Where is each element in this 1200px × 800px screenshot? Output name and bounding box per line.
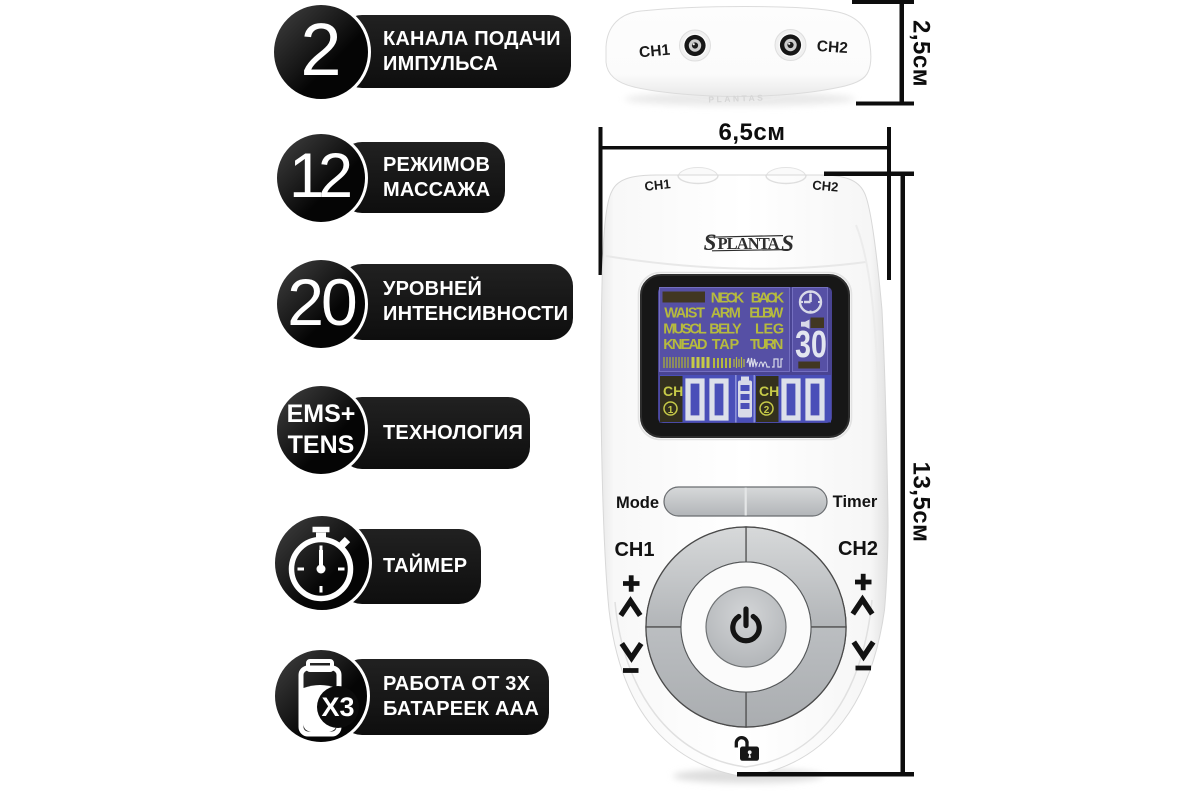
svg-text:CH2: CH2 bbox=[816, 38, 848, 57]
svg-text:CH: CH bbox=[663, 383, 683, 399]
svg-text:6,5см: 6,5см bbox=[719, 119, 786, 146]
svg-text:KNEAD: KNEAD bbox=[663, 337, 707, 353]
svg-text:CH1: CH1 bbox=[638, 42, 671, 62]
svg-text:30: 30 bbox=[795, 324, 827, 366]
svg-text:CH: CH bbox=[759, 383, 779, 399]
svg-text:CH1: CH1 bbox=[644, 176, 671, 194]
svg-text:S: S bbox=[781, 231, 794, 256]
svg-text:NECK: NECK bbox=[711, 291, 745, 307]
svg-text:TURN: TURN bbox=[750, 337, 783, 353]
svg-text:BELY: BELY bbox=[709, 321, 742, 337]
svg-text:Timer: Timer bbox=[833, 493, 878, 511]
svg-text:S: S bbox=[704, 230, 717, 255]
svg-text:ARM: ARM bbox=[711, 306, 741, 322]
svg-text:CH1: CH1 bbox=[614, 539, 654, 561]
svg-text:PLANTA: PLANTA bbox=[718, 234, 780, 253]
svg-text:CH2: CH2 bbox=[812, 177, 839, 194]
svg-text:BACK: BACK bbox=[751, 291, 785, 307]
svg-text:MUSCL: MUSCL bbox=[663, 321, 707, 337]
svg-text:CH2: CH2 bbox=[838, 538, 878, 560]
svg-text:PLANTAS: PLANTAS bbox=[708, 93, 765, 105]
svg-text:ELBW: ELBW bbox=[749, 306, 783, 322]
svg-text:2: 2 bbox=[764, 405, 770, 416]
svg-text:LEG: LEG bbox=[755, 321, 784, 337]
svg-text:2,5см: 2,5см bbox=[908, 20, 935, 87]
svg-text:TAP: TAP bbox=[712, 337, 740, 353]
svg-text:13,5см: 13,5см bbox=[908, 462, 935, 543]
svg-text:1: 1 bbox=[668, 405, 674, 416]
svg-text:Mode: Mode bbox=[616, 494, 659, 512]
svg-text:WAIST: WAIST bbox=[664, 306, 705, 322]
